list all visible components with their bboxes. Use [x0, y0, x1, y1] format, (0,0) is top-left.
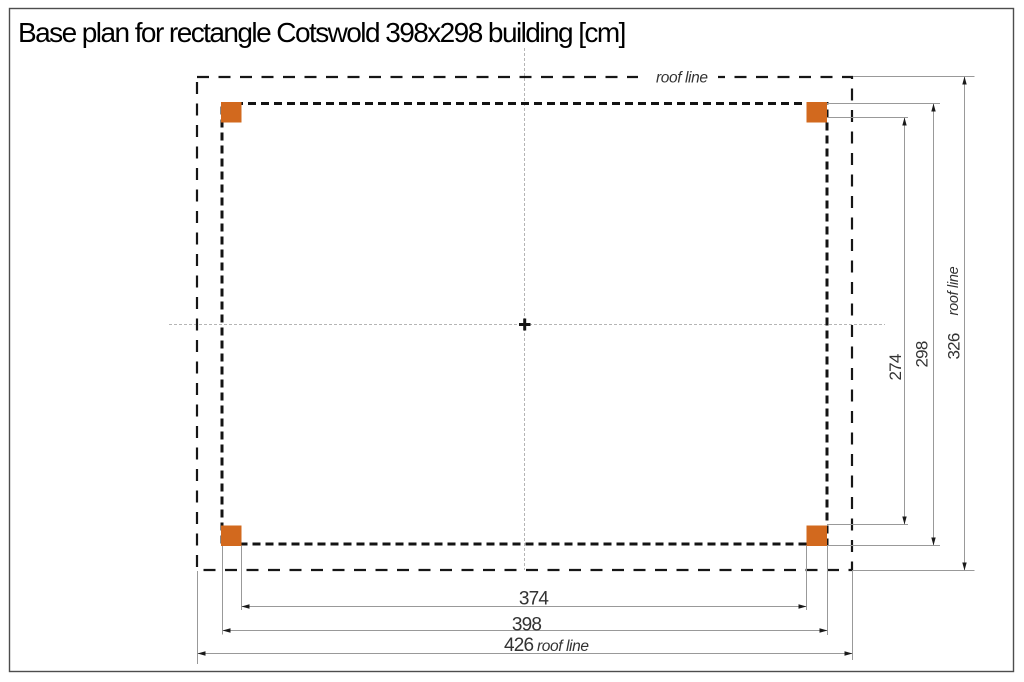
svg-text:398: 398	[512, 615, 542, 636]
svg-text:roof line: roof line	[537, 638, 589, 655]
svg-text:326: 326	[944, 333, 963, 359]
svg-text:426: 426	[504, 635, 534, 656]
svg-text:274: 274	[886, 354, 905, 380]
svg-text:Base plan for rectangle Cotswo: Base plan for rectangle Cotswold 398x298…	[18, 17, 625, 48]
svg-text:roof line: roof line	[656, 70, 708, 87]
svg-text:298: 298	[912, 341, 931, 367]
svg-text:roof line: roof line	[946, 266, 962, 315]
svg-text:374: 374	[519, 589, 550, 610]
